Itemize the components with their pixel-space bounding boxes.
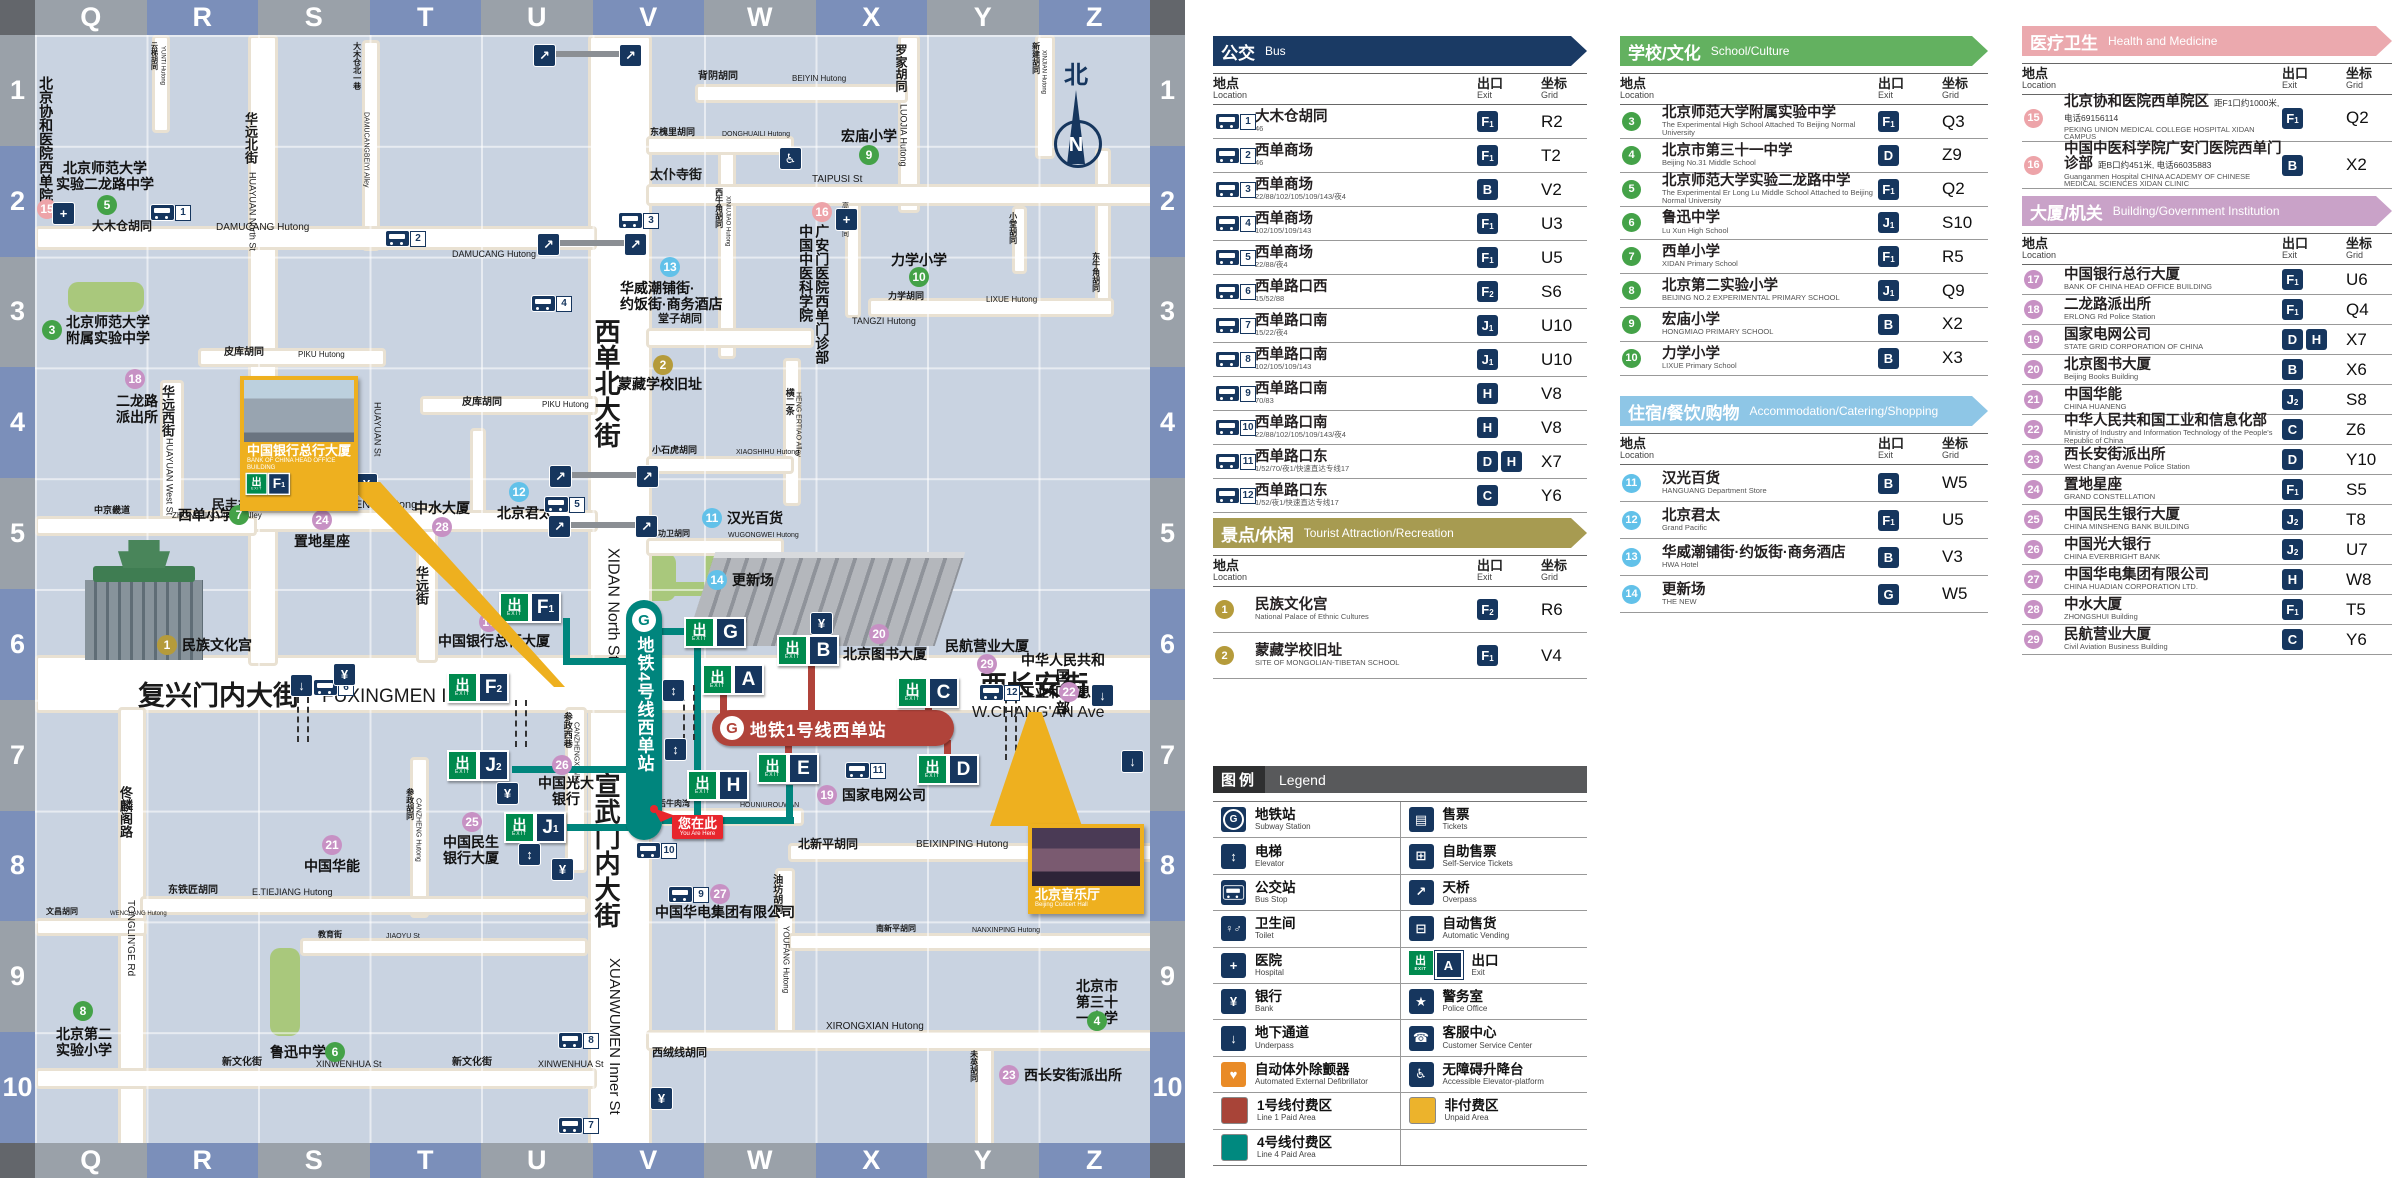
row-exit-cell: F1 <box>2282 599 2346 620</box>
section-title-cn: 学校/文化 <box>1628 39 1701 64</box>
location-name-cn: 中国银行总行大厦 <box>2064 268 2282 283</box>
exit-badge-F1: F1 <box>1477 247 1498 268</box>
legend-item-text: 非付费区Unpaid Area <box>1445 1099 1499 1122</box>
location-name-cn: 中国华能 <box>2064 388 2282 403</box>
bus-stop-number: 12 <box>1004 685 1020 701</box>
park-area <box>270 948 300 1036</box>
location-name-cn: 北京协和医院西单院区距F1口约1000米, 电话69156114 <box>2064 95 2282 125</box>
row-name-cell: 大木仓胡同46 <box>1255 108 1477 135</box>
map-marker-label-15: 北京协和医院西单院区 <box>38 76 54 216</box>
bus-stop-5: 5 <box>544 496 585 513</box>
map-grid-col-U-top: U <box>481 0 593 35</box>
panel-column-3: 医疗卫生Health and Medicine地点Location出口Exit坐… <box>2022 0 2392 1178</box>
location-en: Location <box>1213 573 1477 583</box>
location-marker-5: 5 <box>1622 180 1641 199</box>
location-name-cn: 西单路口南 <box>1255 348 1477 363</box>
section-header-school: 学校/文化School/Culture <box>1620 36 1988 66</box>
legend-item-cn: 电梯 <box>1255 845 1284 859</box>
row-grid-cell: R5 <box>1942 247 1988 267</box>
row-exit-cell: F2 <box>1477 281 1541 302</box>
exit-letter: A <box>733 664 764 695</box>
station-pill-label: 地铁1号线西单站 <box>750 716 886 741</box>
bus-stop-number: 1 <box>175 205 191 221</box>
row-exit-cell: F2 <box>1477 599 1541 620</box>
street-label: 中京畿道 <box>94 506 130 516</box>
bus-section: 公交Bus地点Location出口Exit坐标Grid1大木仓胡同46F1R22… <box>1213 36 1587 513</box>
exit-badge-sub: 1 <box>1489 222 1493 231</box>
hospital-icon: + <box>1221 953 1246 978</box>
map-marker-10: 10 <box>909 267 929 287</box>
row-icon-cell: 18 <box>2022 300 2064 319</box>
legend-item-cn: 出口 <box>1472 954 1499 968</box>
col-header-exit: 出口Exit <box>2282 67 2346 91</box>
overpass-bridge-line <box>571 522 643 528</box>
location-marker-7: 7 <box>1622 247 1641 266</box>
exit-badge-G: 出EXITG <box>684 617 746 648</box>
bus-stop-icon-12: 12 <box>1215 487 1256 504</box>
location-cn: 地点 <box>1213 559 1477 573</box>
row-icon-cell: 29 <box>2022 630 2064 649</box>
exit-chu-char: 出 <box>696 776 710 790</box>
row-exit-cell: B <box>1477 179 1541 200</box>
location-name-en: SITE OF MONGOLIAN-TIBETAN SCHOOL <box>1255 659 1477 667</box>
row-exit-cell: F1 <box>1878 179 1942 200</box>
legend-item-cn: 4号线付费区 <box>1257 1136 1332 1150</box>
building-row-22: 22中华人民共和国工业和信息化部Ministry of Industry and… <box>2022 415 2392 445</box>
you-are-here-cn: 您在此 <box>678 817 717 831</box>
exit-badge-B: 出EXITB <box>777 635 839 666</box>
legend-item-text: 天桥Overpass <box>1443 881 1477 904</box>
row-icon-cell: 20 <box>2022 360 2064 379</box>
map-grid-col-T-bot: T <box>370 1143 482 1178</box>
bus-stop-9: 9 <box>668 886 709 903</box>
street <box>300 938 588 956</box>
map-marker-label-3: 北京师范大学 附属实验中学 <box>66 314 150 346</box>
map-grid-row-10-right: 10 <box>1150 1032 1185 1143</box>
bus-stop-icon-4: 4 <box>1215 215 1256 232</box>
map-marker-22: 22 <box>1059 682 1079 702</box>
school-row-10: 10力学小学LIXUE Primary SchoolBX3 <box>1620 342 1988 376</box>
bus-stop-8: 8 <box>558 1032 599 1049</box>
exit-badge-sub: 2 <box>1489 290 1493 299</box>
overpass-icon: ↗ <box>1409 880 1434 905</box>
bus-icon <box>1215 351 1240 368</box>
exit-badge-sub: 2 <box>2294 518 2298 527</box>
map-marker-2: 2 <box>653 355 673 375</box>
map-marker-11: 11 <box>702 508 722 528</box>
exit-chu-char: 出 <box>766 759 780 773</box>
row-exit-cell: J1 <box>1477 315 1541 336</box>
bus-icon <box>1221 880 1246 905</box>
row-grid-cell: T8 <box>2346 510 2392 530</box>
exit-badge-F1: F1 <box>2282 108 2303 129</box>
legend-item-en: Overpass <box>1443 895 1477 904</box>
location-name-en: Ministry of Industry and Information Tec… <box>2064 429 2282 445</box>
legend-item-cn: 警务室 <box>1443 990 1488 1004</box>
exit-badge-F2: F2 <box>1477 281 1498 302</box>
bus-stop-number: 8 <box>1240 352 1256 368</box>
bus-icon <box>531 295 556 312</box>
location-marker-8: 8 <box>1622 281 1641 300</box>
grid-cn: 坐标 <box>2346 237 2392 251</box>
row-name-cell: 北京市第三十一中学Beijing No.31 Middle School <box>1662 142 1878 169</box>
row-name-cell: 汉光百货HANGUANG Department Store <box>1662 470 1878 497</box>
map-marker-28: 28 <box>432 517 452 537</box>
map-marker-label-13: 华威潮铺街· 约饭街·商务酒店 <box>620 280 723 312</box>
overpass-icon: ↗ <box>537 233 560 256</box>
location-name-cn: 汉光百货 <box>1662 472 1878 487</box>
grid-en: Grid <box>1942 91 1988 101</box>
tourist-row-1: 1民族文化宫National Palace of Ethnic Cultures… <box>1213 587 1587 633</box>
health-row-16: 16中国中医科学院广安门医院西单门诊部距B口约451米, 电话66035883G… <box>2022 142 2392 189</box>
exit-en: Exit <box>1878 91 1942 101</box>
street-label: XINWENHUA St <box>538 1060 604 1070</box>
map-marker-label-2: 蒙藏学校旧址 <box>618 376 702 392</box>
police-icon: ★ <box>1409 989 1434 1014</box>
col-header-location: 地点Location <box>2022 237 2282 261</box>
bus-icon <box>544 496 569 513</box>
overpass-icon: ↗ <box>548 515 571 538</box>
school-row-6: 6鲁迅中学Lu Xun High SchoolJ1S10 <box>1620 207 1988 241</box>
overpass-bridge-line <box>572 472 644 478</box>
row-exit-cell: B <box>2282 359 2346 380</box>
exit-badge-F1: F1 <box>2282 599 2303 620</box>
map-grid-col-T-top: T <box>370 0 482 35</box>
location-name-en: 1/52/夜1/快速直达专线17 <box>1255 499 1477 507</box>
exit-badge-J2: J2 <box>2282 509 2303 530</box>
map-marker-18: 18 <box>125 369 145 389</box>
overpass-icon: ↗ <box>635 515 658 538</box>
exit-chu-icon: 出EXIT <box>447 672 478 703</box>
section-header-bus: 公交Bus <box>1213 36 1587 66</box>
exit-letter: D <box>948 754 979 785</box>
row-name-cell: 中国光大银行CHINA EVERBRIGHT BANK <box>2064 536 2282 563</box>
legend-item-swatch-unpaid: 非付费区Unpaid Area <box>1401 1093 1588 1129</box>
exit-badge-D: D <box>1477 451 1498 472</box>
row-grid-cell: U10 <box>1541 350 1587 370</box>
street-label: 大木仓胡同 <box>92 220 152 233</box>
legend-item-en: Accessible Elevator-platform <box>1443 1077 1544 1086</box>
row-grid-cell: W5 <box>1942 584 1988 604</box>
map-panel: 西单北大街XIDAN North St宣武门内大街XUANWUMEN Inner… <box>0 0 1185 1178</box>
overpass-icon: ↗ <box>533 44 556 67</box>
row-grid-cell: U10 <box>1541 316 1587 336</box>
underpass-icon: ↓ <box>290 674 313 697</box>
legend-item-text: 自动售货Automatic Vending <box>1443 917 1510 940</box>
bus-stop-number: 3 <box>643 213 659 229</box>
row-grid-cell: Y6 <box>1541 486 1587 506</box>
section-title-en: School/Culture <box>1711 44 1790 58</box>
map-marker-label-25: 中国民生 银行大厦 <box>443 834 499 866</box>
location-name-cn: 中国华电集团有限公司 <box>2064 568 2282 583</box>
legend-item-cn: 非付费区 <box>1445 1099 1499 1113</box>
location-cn: 地点 <box>2022 237 2282 251</box>
exit-cn: 出口 <box>1477 77 1541 91</box>
row-exit-cell: F1 <box>2282 269 2346 290</box>
legend-item-text: 1号线付费区Line 1 Paid Area <box>1257 1099 1332 1122</box>
section-title-en: Building/Government Institution <box>2113 204 2280 218</box>
legend-item-en: Automatic Vending <box>1443 931 1510 940</box>
map-grid-row-7-right: 7 <box>1150 700 1185 811</box>
accommodation-section: 住宿/餐饮/购物Accommodation/Catering/Shopping地… <box>1620 396 1988 613</box>
location-name-en: 22/88/102/105/109/143/夜4 <box>1255 193 1477 201</box>
bus-stop-number: 11 <box>870 763 886 779</box>
location-name-en: HWA Hotel <box>1662 561 1878 569</box>
row-icon-cell: 21 <box>2022 390 2064 409</box>
health-section: 医疗卫生Health and Medicine地点Location出口Exit坐… <box>2022 26 2392 189</box>
bus-row-6: 6西单路口西15/52/88F2S6 <box>1213 275 1587 309</box>
bus-row-4: 4西单商场102/105/109/143F1U3 <box>1213 207 1587 241</box>
bus-stop-icon-3: 3 <box>1215 181 1256 198</box>
exit-badge-F1: F1 <box>1878 111 1899 132</box>
location-name-en: The Experimental High School Attached To… <box>1662 121 1878 137</box>
location-name-cn: 西单商场 <box>1255 246 1477 261</box>
location-marker-15: 15 <box>2024 109 2043 128</box>
map-frame-corner <box>1150 1143 1185 1178</box>
street-label: 太仆寺街 <box>650 168 702 182</box>
legend-item-bus: 公交站Bus Stop <box>1213 875 1400 911</box>
row-exit-cell: F1 <box>2282 108 2346 129</box>
overpass-icon: ↗ <box>619 44 642 67</box>
row-icon-cell: 5 <box>1620 180 1662 199</box>
row-icon-cell: 27 <box>2022 570 2064 589</box>
exit-letter-sub: 1 <box>281 478 285 495</box>
aed-icon: ♥ <box>1221 1062 1246 1087</box>
exit-badge-J2: J2 <box>2282 389 2303 410</box>
inset-caption-en: BANK OF CHINA HEAD OFFICE BUILDING <box>247 458 351 471</box>
exit-badge-sub: 1 <box>1489 120 1493 129</box>
exit-badge-sub: 1 <box>1489 154 1493 163</box>
exit-badge-E: 出EXITE <box>757 753 819 784</box>
exit-chu-char: 出 <box>906 683 920 697</box>
row-icon-cell: 2 <box>1213 147 1255 164</box>
row-icon-cell: 7 <box>1620 247 1662 266</box>
legend-header: 图例Legend <box>1213 766 1587 793</box>
grid-cn: 坐标 <box>1942 437 1988 451</box>
row-name-cell: 西单路口东1/52/70/夜1/快速直达专线17 <box>1255 448 1477 475</box>
bus-stop-icon-7: 7 <box>1215 317 1256 334</box>
school-section: 学校/文化School/Culture地点Location出口Exit坐标Gri… <box>1620 36 1988 376</box>
legend-column-right: ▤售票Tickets⊞自助售票Self-Service Tickets↗天桥Ov… <box>1401 802 1588 1165</box>
street-label: 皮库胡同 <box>462 398 502 409</box>
exit-cn: 出口 <box>1878 77 1942 91</box>
street-label: 西单北大街 <box>592 318 620 448</box>
exit-letter: C <box>928 677 959 708</box>
location-marker-10: 10 <box>1622 349 1641 368</box>
row-icon-cell: 25 <box>2022 510 2064 529</box>
exit-badge-sub: 1 <box>1489 256 1493 265</box>
location-marker-13: 13 <box>1622 548 1641 567</box>
exit-badge-B: B <box>1878 473 1899 494</box>
bus-row-7: 7西单路口南15/22/夜4J1U10 <box>1213 309 1587 343</box>
row-grid-cell: U5 <box>1541 248 1587 268</box>
row-name-cell: 二龙路派出所ERLONG Rd Police Station <box>2064 296 2282 323</box>
map-marker-6: 6 <box>325 1042 345 1062</box>
street-label: 东牛角胡同 <box>1091 252 1100 292</box>
exit-badge-sub: 1 <box>1489 324 1493 333</box>
street <box>646 1030 1150 1051</box>
col-header-location: 地点Location <box>1213 559 1477 583</box>
location-name-cn: 北京图书大厦 <box>2064 358 2282 373</box>
bus-icon <box>1215 283 1240 300</box>
bus-icon <box>1215 453 1240 470</box>
exit-exit-text: EXIT <box>251 488 262 492</box>
row-icon-cell: 10 <box>1213 419 1255 436</box>
row-name-cell: 置地星座GRAND CONSTELLATION <box>2064 476 2282 503</box>
health-row-15: 15北京协和医院西单院区距F1口约1000米, 电话69156114PEKING… <box>2022 95 2392 142</box>
map-marker-label-7: 西单小学 <box>178 507 234 523</box>
legend-section: 图例LegendG地铁站Subway Station↕电梯Elevator公交站… <box>1213 766 1587 1166</box>
toilet-icon: ♿ <box>779 147 802 170</box>
bus-stop-number: 11 <box>1240 454 1256 470</box>
row-name-cell: 西单路口南70/83 <box>1255 380 1477 407</box>
bus-icon <box>1215 113 1240 130</box>
location-marker-29: 29 <box>2024 630 2043 649</box>
map-marker-9: 9 <box>859 145 879 165</box>
street-label: DAMUCANGBEIYI Alley <box>362 112 370 187</box>
exit-chu-char: 出 <box>456 678 470 692</box>
subway-icon: G <box>1221 807 1246 832</box>
bus-icon <box>1215 385 1240 402</box>
bus-stop-number: 6 <box>1240 284 1256 300</box>
street-label: PIKU Hutong <box>542 401 589 410</box>
location-marker-2: 2 <box>1215 646 1234 665</box>
location-name-cn: 西长安街派出所 <box>2064 448 2282 463</box>
location-marker-20: 20 <box>2024 360 2043 379</box>
grid-en: Grid <box>1541 91 1587 101</box>
callout-beam-concert-hall <box>990 712 1082 826</box>
section-header-accommodation: 住宿/餐饮/购物Accommodation/Catering/Shopping <box>1620 396 1988 426</box>
map-marker-label-5: 北京师范大学 实验二龙路中学 <box>56 160 154 192</box>
row-icon-cell: 16 <box>2022 156 2064 175</box>
row-grid-cell: V4 <box>1541 646 1587 666</box>
bus-icon <box>1215 317 1240 334</box>
location-name-cn: 更新场 <box>1662 583 1878 598</box>
location-name-en: STATE GRID CORPORATION OF CHINA <box>2064 343 2282 351</box>
exit-badge-F1: F1 <box>1477 645 1498 666</box>
street-label: 参政胡同 <box>405 788 414 820</box>
school-table: 地点Location出口Exit坐标Grid3北京师范大学附属实验中学The E… <box>1620 73 1988 376</box>
location-cn: 地点 <box>1213 77 1477 91</box>
row-exit-cell: F1 <box>1878 111 1942 132</box>
bus-row-8: 8西单路口南102/105/109/143J1U10 <box>1213 343 1587 377</box>
row-exit-cell: F1 <box>1477 111 1541 132</box>
row-grid-cell: V3 <box>1942 547 1988 567</box>
col-header-exit: 出口Exit <box>1477 559 1541 583</box>
accommodation-row-12: 12北京君太Grand PacificF1U5 <box>1620 502 1988 539</box>
row-name-cell: 中华人民共和国工业和信息化部Ministry of Industry and I… <box>2064 412 2282 447</box>
row-icon-cell: 26 <box>2022 540 2064 559</box>
exit-cn: 出口 <box>1878 437 1942 451</box>
exit-en: Exit <box>1477 91 1541 101</box>
map-marker-3: 3 <box>42 320 62 340</box>
row-icon-cell: 3 <box>1620 112 1662 131</box>
street-label: 后牛肉湾 <box>658 800 690 809</box>
exit-exit-text: EXIT <box>695 790 710 795</box>
exit-badge-H: H <box>2306 329 2327 350</box>
bus-icon <box>1215 147 1240 164</box>
row-icon-cell: 5 <box>1213 249 1255 266</box>
row-grid-cell: T5 <box>2346 600 2392 620</box>
exit-cn: 出口 <box>2282 67 2346 81</box>
map-grid-row-6-left: 6 <box>0 589 35 700</box>
row-grid-cell: W5 <box>1942 473 1988 493</box>
legend-item-text: 公交站Bus Stop <box>1255 881 1296 904</box>
bus-stop-icon-10: 10 <box>1215 419 1256 436</box>
exit-chu-char: 出 <box>926 760 940 774</box>
legend-item-en: Elevator <box>1255 859 1284 868</box>
bus-stop-number: 9 <box>693 887 709 903</box>
row-grid-cell: Q2 <box>2346 108 2392 128</box>
location-name-en: CHINA EVERBRIGHT BANK <box>2064 553 2282 561</box>
row-exit-cell: B <box>2282 155 2346 176</box>
row-grid-cell: S6 <box>1541 282 1587 302</box>
location-marker-27: 27 <box>2024 570 2043 589</box>
street-label: 横二条 <box>784 388 794 415</box>
bus-icon <box>845 762 870 779</box>
location-name-cn: 北京师范大学附属实验中学 <box>1662 106 1878 121</box>
row-exit-cell: D <box>2282 449 2346 470</box>
exit-badge-H: 出EXITH <box>687 770 749 801</box>
location-name-cn: 中华人民共和国工业和信息化部 <box>2064 414 2282 429</box>
location-marker-1: 1 <box>1215 600 1234 619</box>
bank-icon: ¥ <box>333 663 356 686</box>
row-icon-cell: 12 <box>1213 487 1255 504</box>
exit-badge-J1: 出EXITJ1 <box>504 812 566 843</box>
row-grid-cell: U3 <box>1541 214 1587 234</box>
map-marker-5: 5 <box>97 195 117 215</box>
map-grid-row-6-right: 6 <box>1150 589 1185 700</box>
bus-icon <box>1215 249 1240 266</box>
exit-badge-sub: 2 <box>2294 398 2298 407</box>
row-grid-cell: X2 <box>2346 155 2392 175</box>
row-icon-cell: 6 <box>1620 213 1662 232</box>
row-icon-cell: 2 <box>1213 646 1255 665</box>
legend-item-text: 自助售票Self-Service Tickets <box>1443 845 1513 868</box>
street-label: 新建胡同 <box>1031 42 1040 74</box>
map-grid-row-2-right: 2 <box>1150 146 1185 257</box>
legend-item-cn: 售票 <box>1443 808 1470 822</box>
legend-item-text: 银行Bank <box>1255 990 1282 1013</box>
overpass-icon: ↗ <box>624 233 647 256</box>
bus-stop-3: 3 <box>618 212 659 229</box>
inset-photo <box>244 380 354 442</box>
exit-badge-B: B <box>1878 547 1899 568</box>
location-note: 距F1口约1000米, 电话69156114 <box>2064 98 2279 123</box>
row-exit-cell: C <box>2282 629 2346 650</box>
legend-item-en: Subway Station <box>1255 822 1311 831</box>
row-icon-cell: 9 <box>1213 385 1255 402</box>
location-marker-3: 3 <box>1622 112 1641 131</box>
overpass-bridge-line <box>556 51 628 57</box>
legend-item-bank: ¥银行Bank <box>1213 984 1400 1020</box>
legend-item-text: 出口Exit <box>1472 954 1499 977</box>
bus-stop-11: 11 <box>845 762 886 779</box>
photo-inset-boc: 中国银行总行大厦BANK OF CHINA HEAD OFFICE BUILDI… <box>240 376 358 511</box>
exit-letter: F2 <box>478 672 509 703</box>
building-row-25: 25中国民生银行大厦CHINA MINSHENG BANK BUILDINGJ2… <box>2022 505 2392 535</box>
school-row-5: 5北京师范大学实验二龙路中学The Experimental Er Long L… <box>1620 173 1988 207</box>
exit-badge-F1: F1 <box>2282 299 2303 320</box>
col-header-location: 地点Location <box>2022 67 2282 91</box>
row-name-cell: 西单商场22/88/102/105/109/143/夜4 <box>1255 176 1477 203</box>
location-en: Location <box>2022 251 2282 261</box>
map-marker-label-20: 北京图书大厦 <box>843 646 927 662</box>
street-label: 北新平胡同 <box>798 838 858 851</box>
street-label: 华远街 <box>414 566 428 605</box>
row-icon-cell: 13 <box>1620 548 1662 567</box>
map-marker-26: 26 <box>552 755 572 775</box>
